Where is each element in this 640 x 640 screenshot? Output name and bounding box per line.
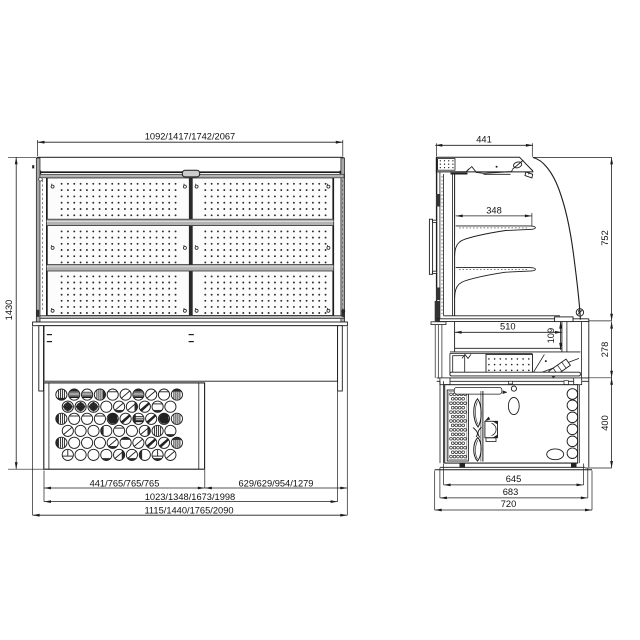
svg-text:1430: 1430 <box>4 300 14 321</box>
svg-text:510: 510 <box>500 322 516 332</box>
svg-text:683: 683 <box>503 487 519 497</box>
svg-text:441/765/765/765: 441/765/765/765 <box>90 478 160 488</box>
svg-text:109: 109 <box>546 328 556 344</box>
svg-text:1115/1440/1765/2090: 1115/1440/1765/2090 <box>144 506 233 516</box>
svg-text:645: 645 <box>506 474 522 484</box>
svg-text:278: 278 <box>600 342 610 358</box>
svg-text:348: 348 <box>486 205 502 215</box>
svg-text:400: 400 <box>600 415 610 431</box>
svg-text:441: 441 <box>476 135 492 145</box>
svg-text:1023/1348/1673/1998: 1023/1348/1673/1998 <box>145 492 235 502</box>
svg-text:629/629/954/1279: 629/629/954/1279 <box>239 478 314 488</box>
svg-text:1092/1417/1742/2067: 1092/1417/1742/2067 <box>145 132 235 142</box>
svg-text:752: 752 <box>600 230 610 246</box>
svg-text:720: 720 <box>501 499 517 509</box>
